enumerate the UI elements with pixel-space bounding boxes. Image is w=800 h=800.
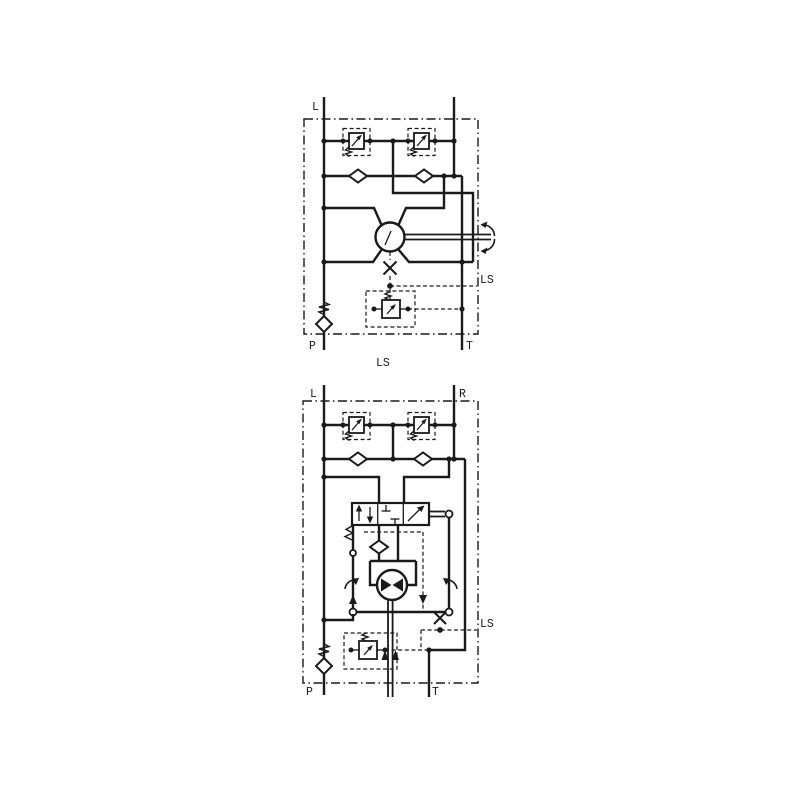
port-label-t: T: [432, 686, 439, 699]
feedback-linkage: [345, 511, 457, 616]
port-label-r: R: [459, 388, 466, 401]
port-label-p: P: [309, 340, 316, 353]
ls-orifice-icon: [434, 612, 446, 624]
ls-relief-valve: [372, 292, 411, 318]
metering-unit: [376, 223, 405, 252]
inlet-check-valve: [316, 644, 332, 674]
ls-port-label: LS: [480, 274, 494, 287]
directional-control-valve: [345, 503, 445, 540]
housing-border: [303, 401, 478, 683]
ls-port-label: LS: [480, 618, 494, 631]
schematic-canvas: L P T LS LS: [0, 0, 800, 800]
steering-shaft: [404, 235, 491, 240]
relief-valve-right: [406, 413, 438, 441]
steering-circuit-top: L P T LS LS: [304, 97, 495, 370]
inlet-check-valve: [316, 302, 332, 332]
check-valve-right: [415, 170, 433, 183]
check-valve-right: [414, 453, 432, 466]
hydraulic-schematics: L P T LS LS: [296, 88, 508, 712]
relief-valve-left: [341, 129, 373, 157]
metering-motor: [370, 525, 416, 600]
ls-relief-valve: [349, 633, 388, 659]
relief-valve-left: [341, 413, 373, 441]
port-label-t: T: [466, 340, 473, 353]
port-label-l: L: [312, 101, 319, 114]
relief-valve-right: [406, 129, 438, 157]
port-label-p: P: [306, 686, 313, 699]
diagram-caption-ls: LS: [376, 357, 390, 370]
steering-circuit-bottom: L R P T LS: [303, 385, 494, 699]
rotation-arrow-icon: [481, 222, 495, 255]
drain-orifice-icon: [384, 252, 397, 284]
check-valve-left: [349, 170, 367, 183]
check-valve-left: [349, 453, 367, 466]
tank-feed-line: [429, 459, 465, 697]
port-label-l: L: [310, 388, 317, 401]
